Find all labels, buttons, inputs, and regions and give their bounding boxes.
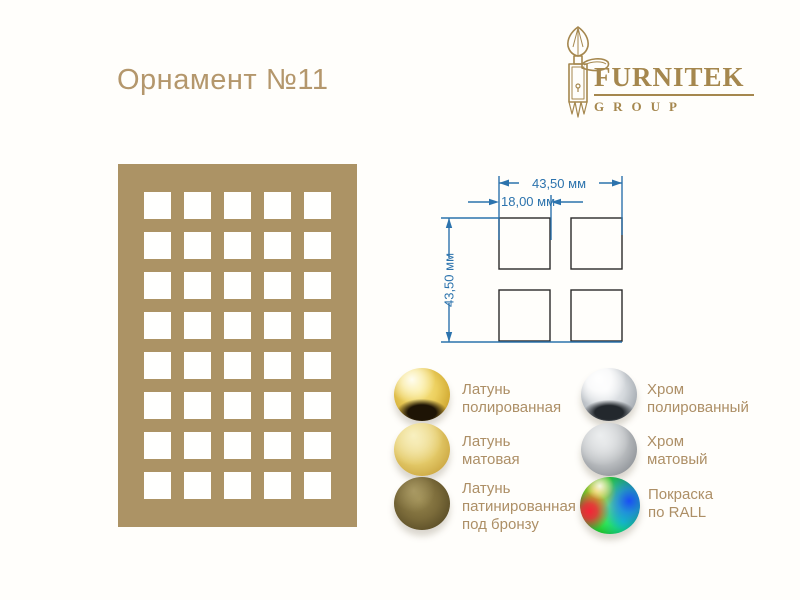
- width-dimension-label: 43,50 мм: [532, 176, 586, 191]
- chrome-matte-label: Хром матовый: [647, 433, 708, 469]
- ornament-hole: [144, 432, 171, 459]
- chrome-polished-swatch: [581, 368, 637, 421]
- ornament-hole: [264, 232, 291, 259]
- ornament-hole: [224, 432, 251, 459]
- ral-paint-label: Покраска по RALL: [648, 486, 713, 522]
- brass-polished-swatch: [394, 368, 450, 421]
- page-title: Орнамент №11: [117, 64, 328, 97]
- ral-paint-swatch: [580, 477, 640, 534]
- ornament-hole: [144, 272, 171, 299]
- ornament-hole: [304, 432, 331, 459]
- ornament-hole: [184, 232, 211, 259]
- finish-label-line: патинированная: [462, 498, 576, 516]
- ornament-hole: [304, 272, 331, 299]
- ornament-hole: [264, 432, 291, 459]
- finish-label-line: матовый: [647, 451, 708, 469]
- diagram-square: [499, 218, 550, 269]
- ornament-hole: [264, 272, 291, 299]
- ornament-hole: [264, 392, 291, 419]
- ornament-hole: [144, 472, 171, 499]
- ornament-hole: [144, 392, 171, 419]
- cell-dimension-label: 18,00 мм: [501, 194, 555, 209]
- brass-patinated-bronze-label: Латунь патинированная под бронзу: [462, 480, 576, 534]
- finish-label-line: Латунь: [462, 381, 561, 399]
- ornament-hole: [224, 312, 251, 339]
- ornament-grid: [118, 164, 357, 527]
- ornament-hole: [224, 352, 251, 379]
- logo-group-text: GROUP: [594, 99, 762, 115]
- finish-label-line: Латунь: [462, 480, 576, 498]
- finish-label-line: Покраска: [648, 486, 713, 504]
- ornament-hole: [304, 392, 331, 419]
- ornament-hole: [224, 472, 251, 499]
- ornament-hole: [304, 472, 331, 499]
- finish-label-line: Хром: [647, 381, 749, 399]
- dimension-diagram: 43,50 мм 18,00 мм 43,50 мм: [435, 165, 635, 355]
- brass-matte-swatch: [394, 423, 450, 476]
- chrome-polished-label: Хром полированный: [647, 381, 749, 417]
- ornament-hole: [264, 352, 291, 379]
- ornament-hole: [224, 272, 251, 299]
- finish-label-line: Латунь: [462, 433, 520, 451]
- brass-patinated-bronze-swatch: [394, 477, 450, 530]
- brass-matte-label: Латунь матовая: [462, 433, 520, 469]
- ornament-hole: [304, 352, 331, 379]
- finish-label-line: по RALL: [648, 504, 713, 522]
- ornament-hole: [304, 232, 331, 259]
- furnitek-logo: FURNITEK GROUP: [556, 24, 766, 124]
- ornament-hole: [304, 312, 331, 339]
- ornament-hole: [184, 392, 211, 419]
- ornament-hole: [144, 192, 171, 219]
- ornament-hole: [184, 352, 211, 379]
- diagram-square: [571, 290, 622, 341]
- ornament-hole: [224, 392, 251, 419]
- ornament-hole: [264, 192, 291, 219]
- finish-label-line: полированный: [647, 399, 749, 417]
- finish-label-line: Хром: [647, 433, 708, 451]
- logo-brand-text: FURNITEK: [594, 62, 762, 93]
- ornament-hole: [184, 192, 211, 219]
- ornament-hole: [264, 312, 291, 339]
- finish-label-line: матовая: [462, 451, 520, 469]
- diagram-square: [571, 218, 622, 269]
- ornament-hole: [184, 432, 211, 459]
- ornament-hole: [144, 312, 171, 339]
- ornament-hole: [264, 472, 291, 499]
- ornament-hole: [184, 472, 211, 499]
- finish-label-line: полированная: [462, 399, 561, 417]
- ornament-hole: [184, 272, 211, 299]
- finish-label-line: под бронзу: [462, 516, 576, 534]
- ornament-hole: [224, 232, 251, 259]
- ornament-hole: [224, 192, 251, 219]
- brass-polished-label: Латунь полированная: [462, 381, 561, 417]
- ornament-hole: [144, 232, 171, 259]
- logo-divider: [594, 94, 754, 96]
- ornament-hole: [304, 192, 331, 219]
- chrome-matte-swatch: [581, 423, 637, 476]
- height-dimension-label: 43,50 мм: [442, 253, 457, 307]
- ornament-hole: [184, 312, 211, 339]
- ornament-hole: [144, 352, 171, 379]
- diagram-square: [499, 290, 550, 341]
